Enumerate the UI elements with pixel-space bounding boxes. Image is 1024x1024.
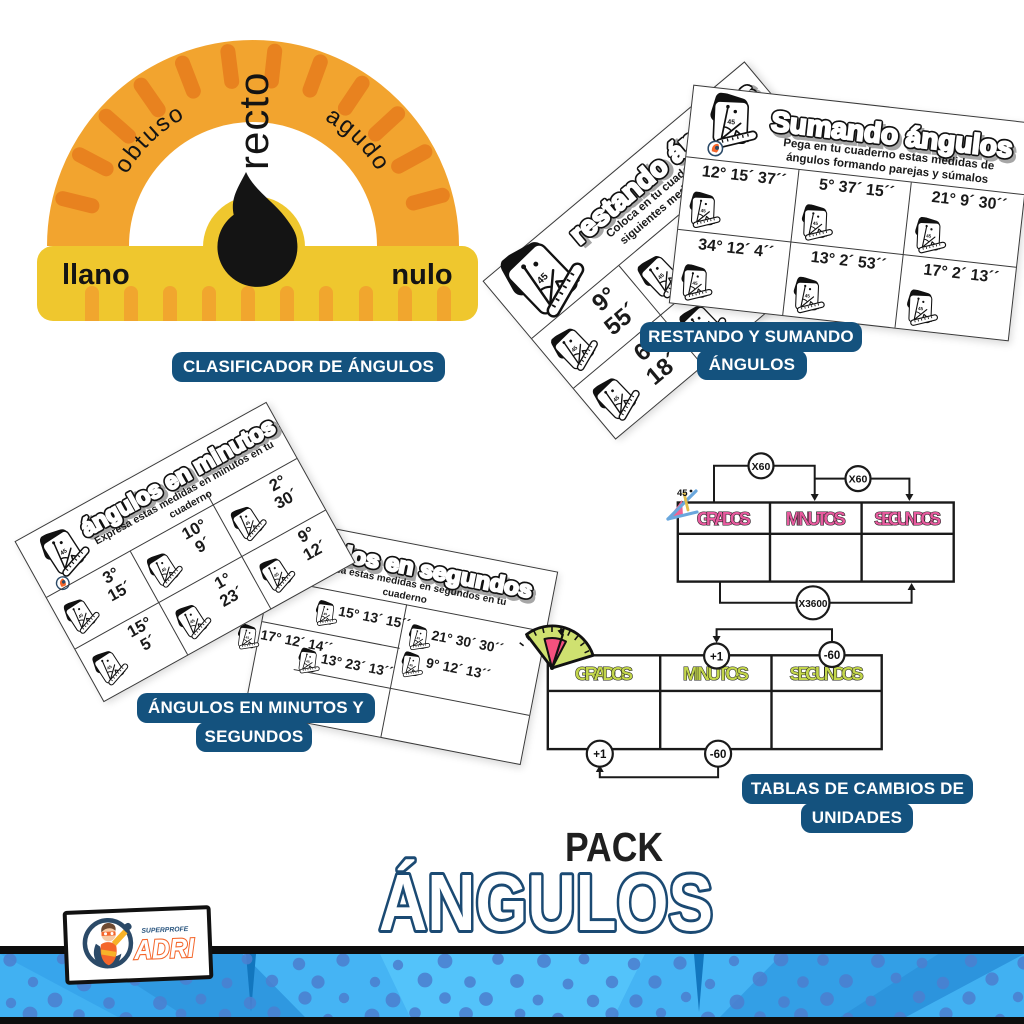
- svg-text:X60: X60: [849, 474, 868, 486]
- svg-text:SEGUNDOS: SEGUNDOS: [874, 509, 941, 529]
- svg-text:-60: -60: [710, 749, 727, 761]
- svg-text:45: 45: [677, 488, 688, 499]
- svg-text:X3600: X3600: [799, 599, 828, 610]
- svg-text:ADRI: ADRI: [133, 933, 196, 965]
- svg-text:+1: +1: [593, 749, 607, 761]
- svg-text:nulo: nulo: [391, 259, 452, 291]
- svg-text:GRADOS: GRADOS: [697, 509, 751, 529]
- svg-text:recto: recto: [230, 72, 277, 170]
- svg-text:X60: X60: [752, 461, 771, 473]
- svg-text:-60: -60: [824, 650, 841, 662]
- svg-text:ÁNGULOS: ÁNGULOS: [379, 858, 713, 945]
- svg-text:GRADOS: GRADOS: [575, 663, 633, 684]
- svg-text:+1: +1: [710, 652, 724, 664]
- svg-text:MINUTOS: MINUTOS: [786, 509, 846, 529]
- svg-text:llano: llano: [62, 259, 130, 291]
